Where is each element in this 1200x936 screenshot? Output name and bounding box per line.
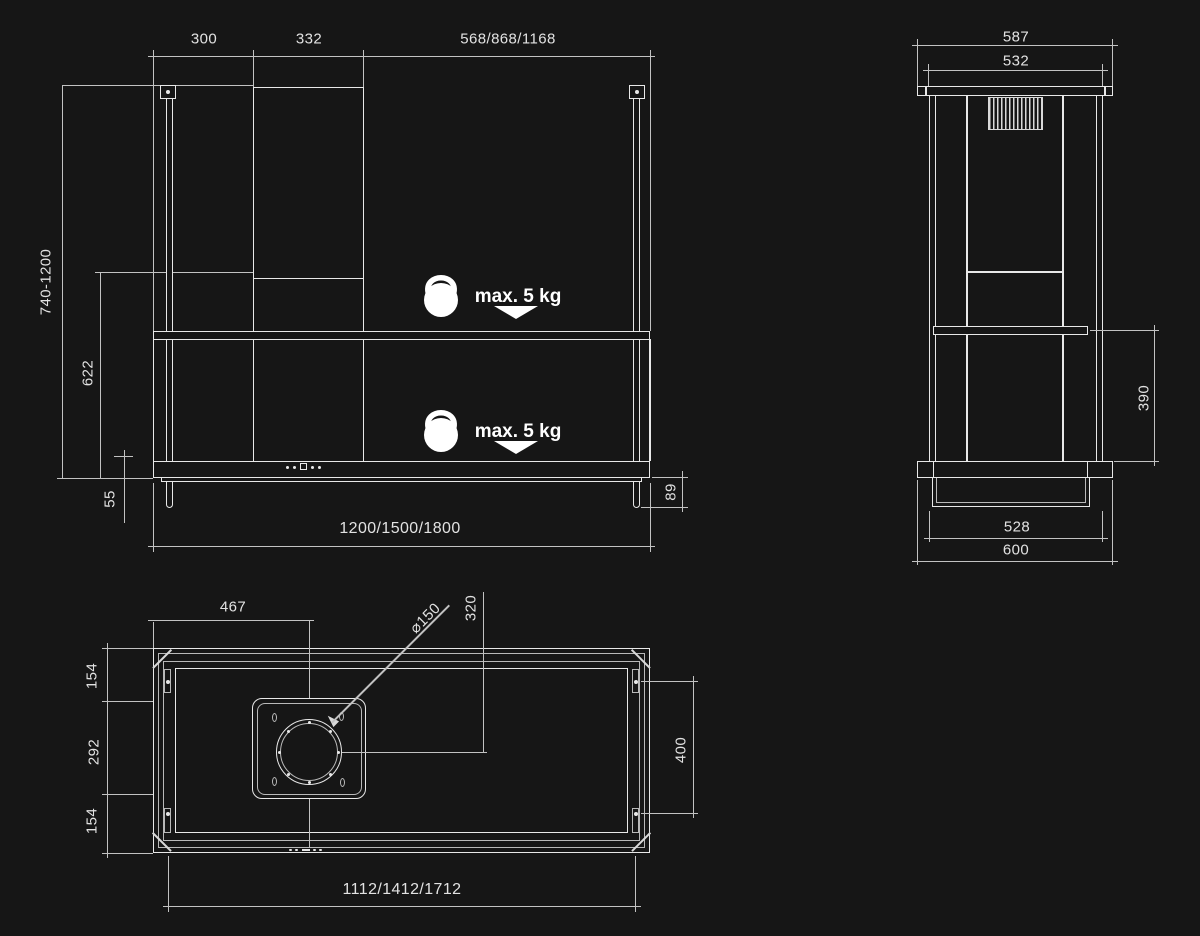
front-ext-chimney-left — [253, 50, 254, 88]
dim-label-top-panel-width: 1112/1412/1712 — [343, 881, 462, 899]
front-side-edge-left — [153, 339, 155, 461]
dim-label-front-height-range: 740-1200 — [38, 249, 55, 316]
front-control-dot-3 — [311, 466, 314, 469]
side-shelf — [933, 326, 1088, 335]
side-hood-body — [917, 461, 1113, 478]
top-ext-400-top — [641, 681, 698, 682]
top-dim-154-line — [107, 643, 108, 858]
front-hood-body — [153, 461, 650, 478]
top-centerline-down — [309, 799, 310, 848]
front-tick-55 — [114, 456, 133, 457]
side-plate-inner-right — [1104, 87, 1106, 96]
dim-label-top-duct-offset-back: 320 — [463, 595, 480, 621]
kettlebell-icon — [418, 401, 464, 453]
front-rod-right — [633, 99, 640, 508]
top-rod-dot-br — [634, 812, 638, 816]
top-ext-154-d — [102, 853, 153, 854]
front-glass-lip — [161, 477, 642, 482]
max-load-label: max. 5 kg — [475, 286, 562, 308]
side-dim-600-line — [912, 561, 1118, 562]
dim-label-top-duct-diameter: ⌀150 — [406, 599, 444, 637]
dim-label-front-offset-left: 300 — [191, 31, 217, 48]
top-dim-320-line — [483, 592, 484, 753]
top-dim-467-line — [148, 620, 314, 621]
top-ext-154-b — [102, 701, 153, 702]
top-centerline-right — [342, 752, 487, 753]
side-ext-532-left — [928, 64, 929, 86]
front-chimney-divider — [253, 278, 364, 280]
top-centerline-up — [309, 620, 310, 698]
front-ext-bottom-right — [650, 483, 651, 552]
side-chimney-right-lower — [1062, 334, 1064, 461]
side-ext-390-bottom — [1114, 461, 1159, 462]
front-control-dot-1 — [286, 466, 289, 469]
front-dim-height-line — [62, 85, 63, 479]
front-chimney — [253, 87, 364, 462]
top-dim-400-line — [693, 676, 694, 818]
dim-label-side-clearance: 390 — [1136, 385, 1153, 411]
side-dim-532-line — [923, 70, 1108, 71]
side-chimney-left-lower — [966, 334, 968, 461]
front-dim-top-line — [148, 56, 655, 57]
side-flex-duct — [988, 97, 1043, 130]
top-bolt-7 — [278, 751, 281, 754]
side-rod-r2 — [1102, 95, 1104, 461]
dim-label-front-span-right: 568/868/1168 — [460, 31, 555, 48]
front-ext-left — [153, 50, 154, 331]
side-chimney-right-upper — [1062, 95, 1064, 326]
side-ext-390-top — [1090, 330, 1159, 331]
top-bolt-2 — [329, 730, 332, 733]
side-chimney-left-upper — [966, 95, 968, 326]
side-ext-587-left — [917, 39, 918, 86]
top-control-display — [302, 849, 310, 851]
top-dim-1112-line — [163, 906, 641, 907]
front-rod-left — [166, 99, 173, 508]
top-screw-hole-4 — [340, 778, 345, 787]
front-bracket-right-dot — [635, 90, 639, 94]
top-rod-dot-tl — [166, 680, 170, 684]
technical-drawing-canvas: 300 332 568/868/1168 740-1200 622 55 89 … — [0, 0, 1200, 936]
top-control-dot-4 — [319, 849, 322, 852]
top-ext-154-c — [102, 794, 153, 795]
top-rod-dot-bl — [166, 812, 170, 816]
dim-label-side-base-span: 528 — [1004, 519, 1030, 536]
top-bolt-6 — [287, 773, 290, 776]
dim-label-top-back-margin: 154 — [84, 663, 101, 689]
side-ext-532-right — [1102, 64, 1103, 86]
side-dim-390-line — [1154, 325, 1155, 466]
side-rod-r1 — [1096, 95, 1098, 461]
dim-label-front-total-width: 1200/1500/1800 — [339, 520, 460, 538]
side-rod-l1 — [929, 95, 931, 461]
top-rod-dot-tr — [634, 680, 638, 684]
front-control-dot-4 — [318, 466, 321, 469]
dim-label-side-plate-width: 587 — [1003, 29, 1029, 46]
front-control-display — [300, 463, 307, 470]
front-ext-hood-bottom — [57, 478, 153, 479]
top-screw-hole-1 — [272, 713, 277, 722]
dim-label-front-rod-overhang: 89 — [663, 483, 680, 501]
dim-label-front-lower-height: 622 — [80, 360, 97, 386]
top-control-dot-2 — [295, 849, 298, 852]
top-bolt-3 — [337, 751, 340, 754]
side-rod-l2 — [935, 95, 937, 461]
side-ext-600-right — [1112, 480, 1113, 565]
top-ext-467 — [153, 622, 154, 648]
top-frame-inner — [175, 668, 628, 833]
front-ext-right — [650, 50, 651, 331]
side-ext-528-left — [929, 511, 930, 542]
side-ext-587-right — [1112, 39, 1113, 86]
front-ext-89-top — [652, 477, 688, 478]
front-dim-622-line — [100, 272, 101, 479]
load-arrow-down-icon — [494, 306, 538, 319]
top-ext-154-a — [102, 648, 153, 649]
front-control-dot-2 — [293, 466, 296, 469]
side-glass-inner — [936, 478, 1086, 503]
side-dim-587-line — [912, 45, 1118, 46]
dim-label-side-hanger-span: 532 — [1003, 53, 1029, 70]
top-ext-1112-left — [168, 856, 169, 912]
front-ceiling-line — [62, 85, 253, 86]
top-control-dot-3 — [313, 849, 316, 852]
top-bolt-1 — [308, 721, 311, 724]
front-shelf — [153, 331, 650, 340]
side-ext-600-left — [917, 480, 918, 565]
dim-label-top-duct-offset-left: 467 — [220, 599, 246, 616]
side-chimney-divider — [967, 271, 1063, 273]
front-dim-55-line — [124, 450, 125, 523]
max-load-label: max. 5 kg — [475, 421, 562, 443]
dim-label-top-mid-span: 292 — [86, 739, 103, 765]
dim-label-front-duct-width: 332 — [296, 31, 322, 48]
dim-label-top-front-margin: 154 — [84, 808, 101, 834]
front-bracket-left-dot — [166, 90, 170, 94]
front-dim-89-line — [682, 471, 683, 512]
top-control-dot-1 — [289, 849, 292, 852]
top-screw-hole-3 — [272, 777, 277, 786]
front-dim-bottom-line — [148, 546, 655, 547]
side-hood-inner-left — [933, 462, 935, 478]
kettlebell-icon — [418, 266, 464, 318]
side-ext-528-right — [1102, 511, 1103, 542]
side-dim-528-line — [924, 538, 1108, 539]
top-bolt-5 — [308, 781, 311, 784]
top-ext-1112-right — [635, 856, 636, 912]
dim-label-front-body-height: 55 — [102, 490, 119, 508]
side-plate-inner-left — [925, 87, 927, 96]
dim-label-side-depth: 600 — [1003, 542, 1029, 559]
dim-label-top-rod-spacing: 400 — [673, 737, 690, 763]
side-hood-inner-right — [1087, 462, 1089, 478]
front-ext-622-top — [95, 272, 253, 273]
top-bolt-4 — [329, 773, 332, 776]
top-bolt-8 — [287, 730, 290, 733]
top-ext-400-bottom — [641, 813, 698, 814]
load-arrow-down-icon — [494, 441, 538, 454]
front-ext-chimney-right — [363, 50, 364, 88]
front-side-edge-right — [649, 339, 651, 461]
front-ext-bottom-left — [153, 483, 154, 552]
side-ceiling-plate — [917, 86, 1113, 96]
